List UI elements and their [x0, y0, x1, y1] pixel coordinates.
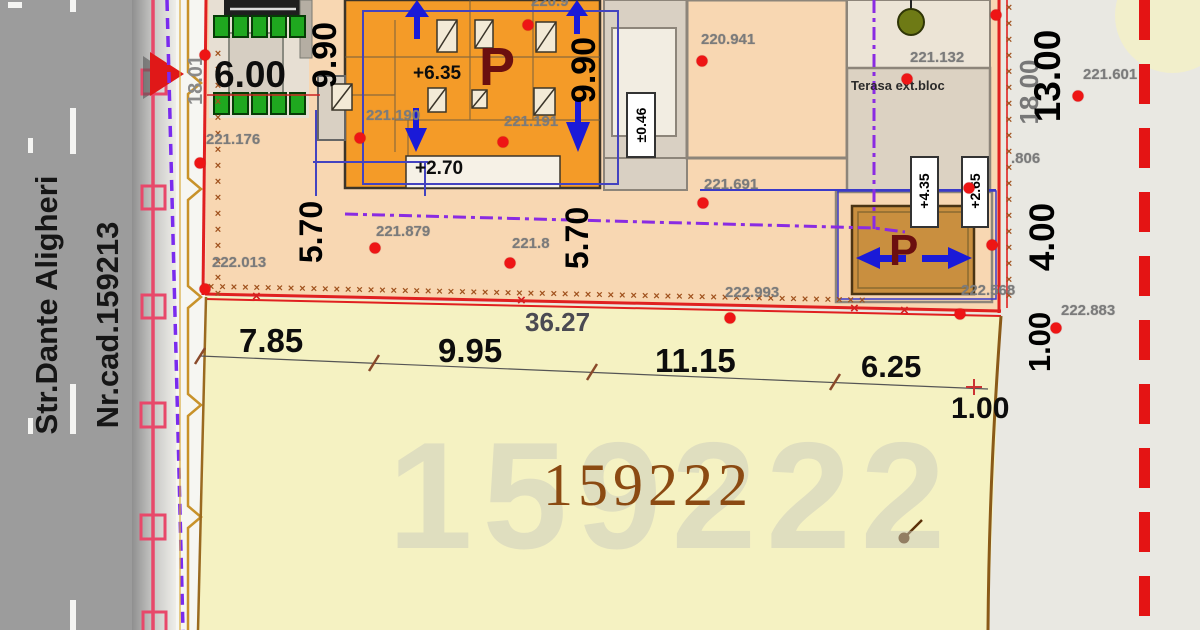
spot-elevation: 221.132 [910, 50, 964, 65]
survey-point [697, 56, 708, 67]
survey-point [964, 183, 975, 194]
spot-elevation: 221.691 [704, 177, 758, 192]
dim-7-85: 7.85 [239, 324, 303, 357]
spot-elevation: .806 [1011, 151, 1040, 166]
survey-point [725, 313, 736, 324]
boundary-cross: × [850, 300, 859, 317]
level-mid: +2.70 [415, 159, 463, 178]
level-ground: ±0.46 [632, 95, 650, 155]
dim-total-36-27: 36.27 [525, 309, 590, 335]
dim-4-00: 4.00 [1024, 182, 1060, 292]
spot-elevation: 221.191 [504, 114, 558, 129]
survey-point [1051, 323, 1062, 334]
spot-elevation: 222.993 [725, 285, 779, 300]
spot-elevation: 221.879 [376, 224, 430, 239]
terrace-label: Terasa ext.bloc [851, 79, 945, 92]
dim-13-00: 13.00 [1027, 16, 1067, 136]
dim-5-70-left: 5.70 [295, 182, 327, 282]
street-name: Str.Dante Aligheri [28, 105, 64, 505]
boundary-cross: × [900, 302, 909, 319]
level-small-roof: +4.35 [916, 161, 932, 221]
survey-point [200, 50, 211, 61]
spot-elevation: 221.176 [206, 132, 260, 147]
parking-symbol-main: P [479, 40, 515, 94]
dim-5-70-mid: 5.70 [561, 188, 593, 288]
survey-point [902, 74, 913, 85]
cadastral-site-plan: ×××××××××××××××××××××× ×××××××××××××××××… [0, 0, 1200, 630]
dim-6-25: 6.25 [861, 351, 921, 382]
spot-elevation: 221.190 [366, 108, 420, 123]
dim-9-90-mid: 9.90 [568, 20, 600, 120]
parcel-number: 159222 [543, 455, 753, 515]
parking-symbol-small: P [889, 229, 918, 273]
survey-point [1073, 91, 1084, 102]
survey-point [955, 309, 966, 320]
spot-elevation: 220.941 [701, 32, 755, 47]
dim-11-15: 11.15 [655, 344, 736, 377]
spot-elevation: 221.8 [512, 236, 550, 251]
survey-point [698, 198, 709, 209]
dim-1-00-bottom: 1.00 [951, 394, 1009, 424]
street-boundary [141, 0, 184, 630]
survey-point [370, 243, 381, 254]
level-roof: +6.35 [413, 64, 461, 83]
survey-dashed-line [1139, 0, 1150, 630]
dim-9-95: 9.95 [438, 334, 502, 367]
survey-point [498, 137, 509, 148]
spot-elevation: 222.013 [212, 255, 266, 270]
survey-point [505, 258, 516, 269]
dim-1-00-right: 1.00 [1023, 292, 1055, 392]
survey-point [355, 133, 366, 144]
survey-point [991, 10, 1002, 21]
survey-point [987, 240, 998, 251]
survey-point [523, 20, 534, 31]
road-width-dim: 18.01 [184, 35, 208, 125]
survey-point [200, 284, 211, 295]
spot-elevation: 221.601 [1083, 67, 1137, 82]
boundary-cross: × [252, 288, 261, 305]
spot-elevation: 222.883 [1061, 303, 1115, 318]
spot-elevation: 222.568 [961, 283, 1015, 298]
survey-point [195, 158, 206, 169]
spot-elevation: 220.9 [531, 0, 569, 9]
dim-6-00: 6.00 [214, 56, 286, 93]
dim-9-90-left: 9.90 [309, 5, 341, 105]
street-cad-number: Nr.cad.159213 [89, 135, 125, 515]
